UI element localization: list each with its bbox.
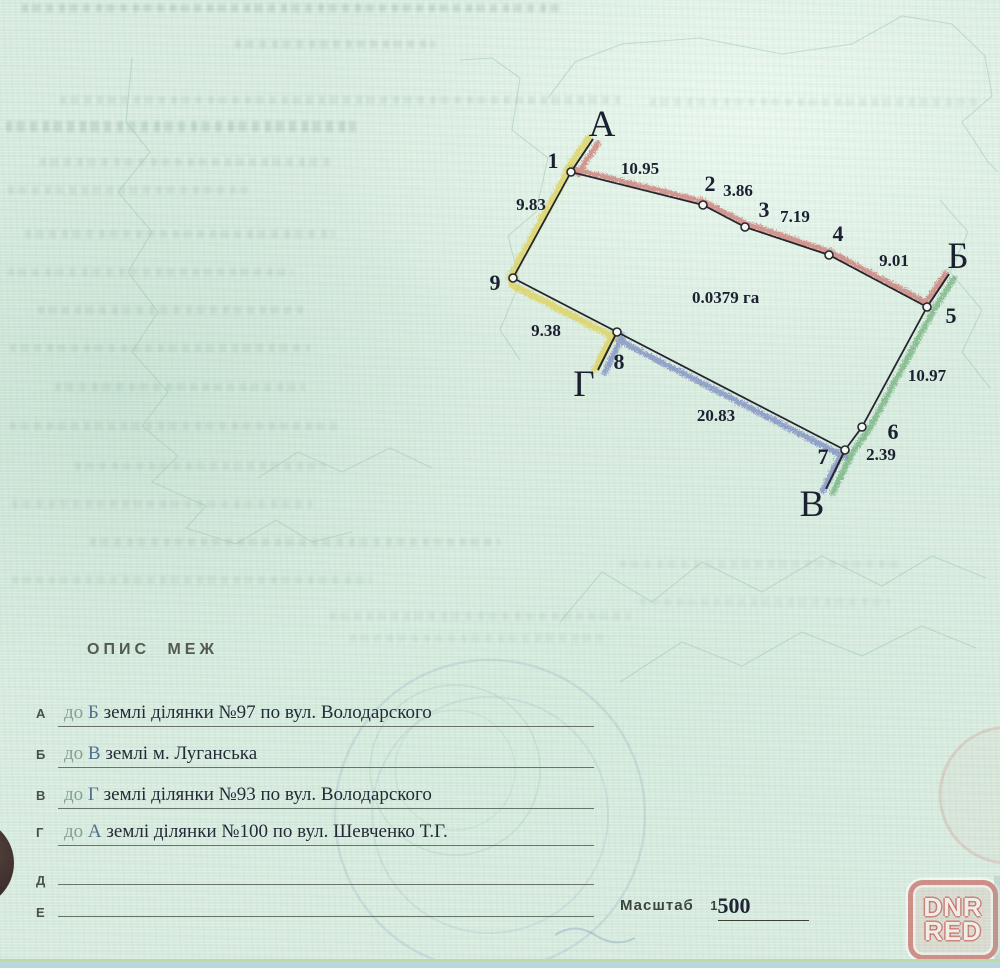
row-text: землі ділянки №93 по вул. Володарского — [104, 784, 432, 805]
corner-label-b: Б — [947, 236, 968, 277]
scale-label: Масштаб — [620, 897, 694, 914]
row-prefix: до — [64, 743, 83, 764]
row-prefix: до — [64, 784, 83, 805]
vertex-label-8: 8 — [614, 349, 625, 374]
row-entry: до А землі ділянки №100 по вул. Шевченко… — [58, 819, 594, 846]
row-letter: А — [36, 706, 58, 721]
row-entry: до Б землі ділянки №97 по вул. Володарск… — [58, 700, 594, 727]
description-row-g: Г до А землі ділянки №100 по вул. Шевчен… — [36, 819, 594, 846]
row-text: землі ділянки №100 по вул. Шевченко Т.Г. — [106, 821, 447, 842]
length-label-5-6: 10.97 — [908, 366, 947, 385]
row-text: землі ділянки №97 по вул. Володарского — [104, 702, 432, 723]
vertex-label-4: 4 — [833, 221, 844, 246]
row-letter: Д — [36, 873, 58, 888]
area-label: 0.0379 га — [692, 288, 760, 307]
row-letter: Б — [36, 747, 58, 762]
row-letter: Г — [36, 825, 58, 840]
length-label-6-7: 2.39 — [866, 445, 896, 464]
vertex-label-6: 6 — [888, 419, 899, 444]
row-entry: до В землі м. Луганська — [58, 741, 594, 768]
vertex-label-1: 1 — [548, 148, 559, 173]
row-target-letter: А — [88, 821, 102, 842]
row-entry — [58, 890, 594, 917]
vertex-label-2: 2 — [705, 171, 716, 196]
length-label-8-9: 9.38 — [531, 321, 561, 340]
description-row-e: Е — [36, 890, 594, 920]
description-row-b: Б до В землі м. Луганська — [36, 741, 594, 768]
description-row-v: В до Г землі ділянки №93 по вул. Володар… — [36, 782, 594, 809]
description-row-d: Д — [36, 858, 594, 888]
length-label-2-3: 3.86 — [723, 181, 753, 200]
vertex-label-7: 7 — [818, 444, 829, 469]
vertex-label-9: 9 — [490, 270, 501, 295]
description-title: ОПИС МЕЖ — [87, 641, 218, 659]
length-label-1-2: 10.95 — [621, 159, 659, 178]
watermark-line2: RED — [924, 920, 982, 944]
row-prefix: до — [64, 702, 83, 723]
corner-label-a: А — [589, 104, 616, 145]
corner-label-g: Г — [573, 364, 594, 405]
row-target-letter: Б — [88, 702, 99, 723]
scale-ratio-prefix: 1 — [710, 898, 717, 913]
row-letter: Е — [36, 905, 58, 920]
length-label-9-1: 9.83 — [516, 195, 546, 214]
vertex-label-3: 3 — [759, 197, 770, 222]
dnr-red-watermark: DNR RED — [908, 880, 998, 960]
scale-value: 500 — [718, 893, 809, 921]
length-label-3-4: 7.19 — [780, 207, 810, 226]
row-entry — [58, 858, 594, 885]
scan-right-edge — [994, 876, 1000, 961]
row-prefix: до — [64, 821, 83, 842]
scanned-land-act-page: А Б В Г 1 2 3 4 5 6 7 8 9 10.95 3.86 7.1… — [0, 0, 1000, 968]
row-entry: до Г землі ділянки №93 по вул. Володарск… — [58, 782, 594, 809]
row-text: землі м. Луганська — [105, 743, 257, 764]
description-row-a: А до Б землі ділянки №97 по вул. Володар… — [36, 700, 594, 727]
corner-label-v: В — [800, 484, 825, 525]
length-label-7-8: 20.83 — [697, 406, 735, 425]
row-target-letter: В — [88, 743, 101, 764]
row-letter: В — [36, 788, 58, 803]
scale-block: Масштаб 1500 — [620, 893, 809, 921]
vertex-label-5: 5 — [946, 303, 957, 328]
row-target-letter: Г — [88, 784, 99, 805]
scan-bottom-edge — [0, 959, 1000, 968]
length-label-4-5: 9.01 — [879, 251, 909, 270]
